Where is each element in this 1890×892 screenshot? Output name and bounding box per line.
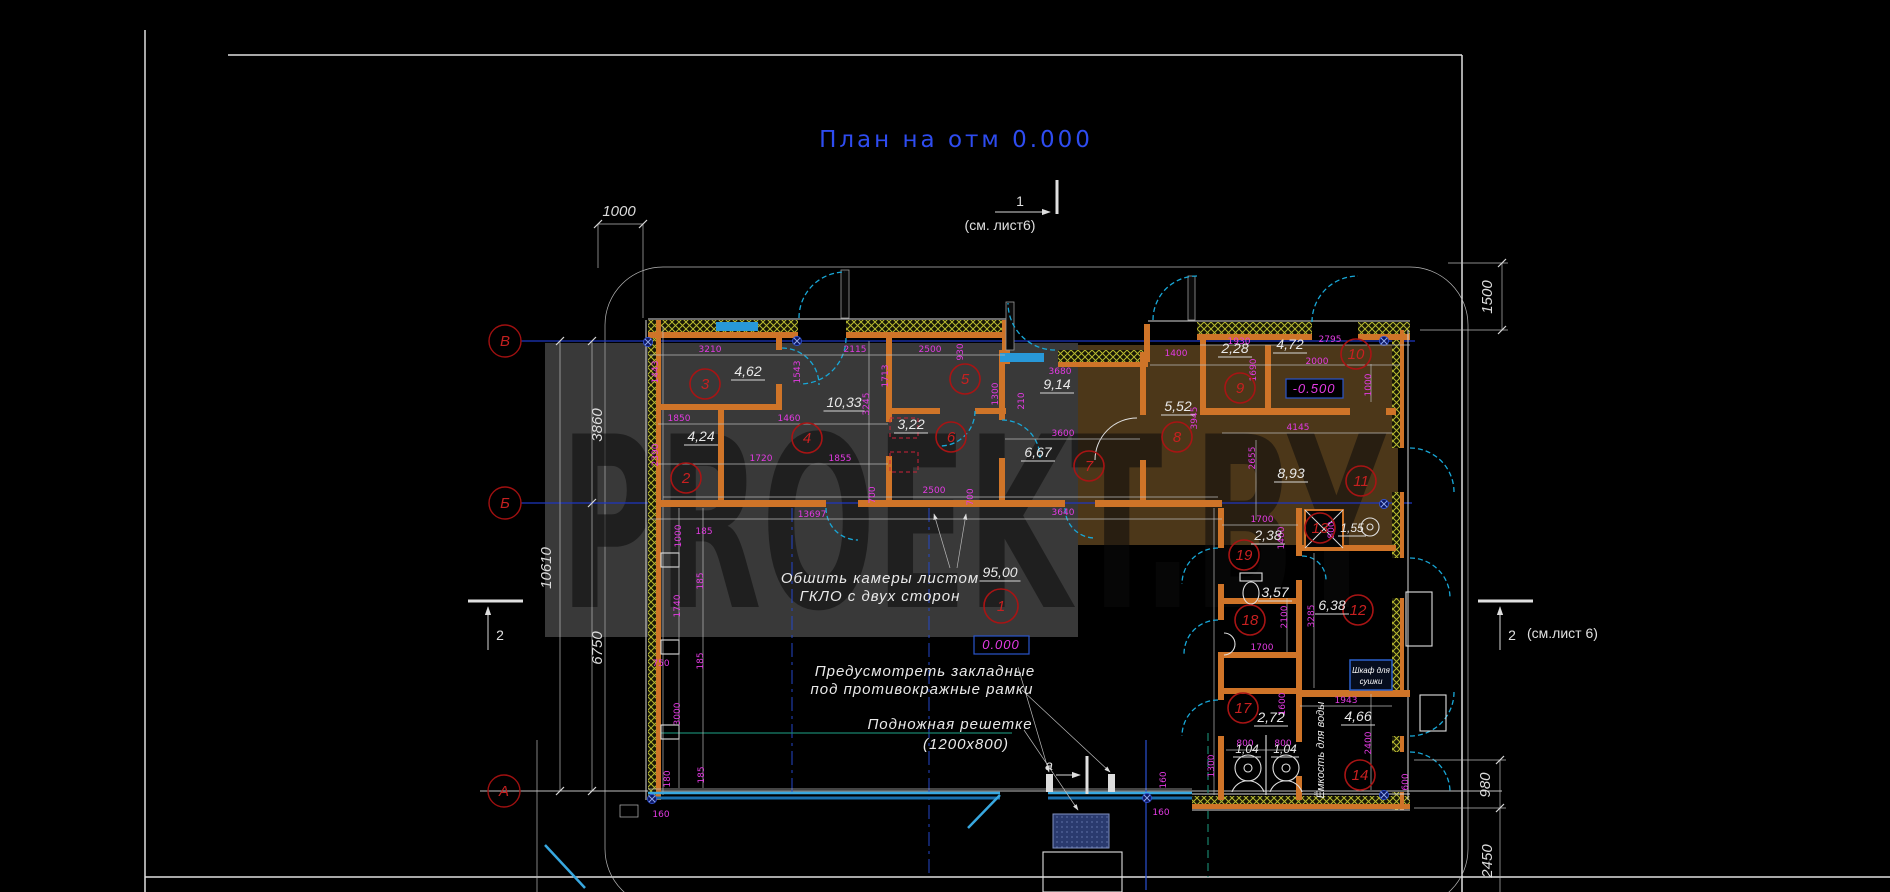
dimension-label: 1400	[1165, 349, 1188, 359]
room-area-label: 4,24	[687, 428, 714, 444]
dimension-label: 3000	[673, 702, 683, 725]
dimension-label: 13697	[798, 510, 827, 520]
dimension-label: 1700	[1251, 515, 1274, 525]
room-area-label: 6,38	[1318, 597, 1345, 613]
dimension-label: 160	[652, 810, 669, 820]
room-number: 17	[1235, 700, 1252, 717]
dimension-label: 1460	[778, 414, 801, 424]
dimension-label: 930	[956, 343, 966, 360]
dimension-label: 750	[652, 659, 669, 669]
dimension-label: 1700	[1251, 643, 1274, 653]
section-top-number: 1	[1016, 193, 1024, 209]
drying-cabinet-label-line1: Шкаф для	[1352, 666, 1390, 675]
dimension-label: 1300	[1207, 754, 1217, 777]
dimension-label: 1300	[991, 382, 1001, 405]
room-area-label: 9,14	[1043, 376, 1070, 392]
section-marker-left: 2	[468, 601, 523, 650]
dimension-label: 3210	[699, 345, 722, 355]
dimension-label: 2655	[1248, 447, 1258, 470]
section-right-number: 2	[1508, 627, 1516, 643]
room-area-label: 3,22	[897, 416, 924, 432]
note-embedded-line1: Предусмотреть закладные	[815, 663, 1035, 680]
dimension-label: 1000	[674, 524, 684, 547]
elevation-0000: 0.000	[982, 637, 1020, 652]
room-area-label: 2,38	[1253, 527, 1281, 543]
cad-drawing-viewport[interactable]: PROEKT.BY	[0, 0, 1890, 892]
floor-plan-canvas: PROEKT.BY	[0, 0, 1890, 892]
note-grate-line2: (1200х800)	[923, 736, 1009, 753]
room-area-label: 4,66	[1344, 708, 1371, 724]
dimension-label: 2390	[651, 443, 661, 466]
room-number: 7	[1085, 458, 1094, 475]
dimension-label: 1000	[1364, 373, 1374, 396]
dimension-label: 700	[966, 488, 976, 505]
dimension-label: 185	[696, 652, 706, 669]
room-area-label: 2,28	[1220, 340, 1248, 356]
dimension-label: 1443	[651, 361, 661, 384]
room-area-label: 10,33	[826, 394, 861, 410]
drawing-title: План на отм 0.000	[819, 127, 1093, 153]
axis-label-a: А	[498, 783, 509, 800]
dimension-label: 2115	[844, 345, 867, 355]
section-top-note: (см. лист6)	[965, 217, 1036, 233]
room-area-label: 4,62	[734, 363, 761, 379]
dimension-label: 10610	[538, 546, 555, 588]
dimension-label: 3245	[862, 393, 872, 416]
dimension-label: 185	[695, 527, 712, 537]
room-number: 5	[961, 371, 970, 388]
room-number: 13	[1312, 520, 1329, 537]
dimension-label: 185	[697, 766, 707, 783]
note-embedded-line2: под противокражные рамки	[811, 681, 1034, 698]
room-area-label: 95,00	[982, 564, 1017, 580]
section-bottom-letter: а	[1045, 757, 1053, 773]
water-tank-label: Ёмкость для воды	[1315, 702, 1327, 799]
drying-cabinet-label-line2: сушки	[1360, 677, 1383, 686]
dimension-label: 600	[1401, 773, 1411, 790]
dimension-label: 2000	[1306, 357, 1329, 367]
axis-label-v: В	[500, 333, 510, 350]
dimension-label: 1855	[829, 454, 852, 464]
dimension-label: 1500	[1479, 280, 1496, 314]
dimension-label: 180	[663, 770, 673, 787]
room-number: 11	[1353, 473, 1369, 490]
dimension-label: 2500	[923, 486, 946, 496]
room-area-label: 1,04	[1273, 742, 1297, 756]
room-area-label: 1,55	[1340, 521, 1364, 535]
dimension-label: 1850	[668, 414, 691, 424]
section-marker-top: 1 (см. лист6)	[965, 180, 1057, 233]
room-area-label: 5,52	[1164, 398, 1191, 414]
note-sheathing-line1: Обшить камеры листом	[781, 570, 979, 587]
entrance-mat	[1043, 774, 1122, 892]
dimension-label: 1720	[750, 454, 773, 464]
room-number: 9	[1236, 380, 1245, 397]
room-area-label: 2,72	[1256, 709, 1284, 725]
dimension-label: 980	[1477, 772, 1494, 798]
room-area-label: 1,04	[1235, 742, 1259, 756]
room-number: 2	[681, 470, 691, 487]
dimension-label: 1713	[881, 365, 891, 388]
room-area-label: 4,72	[1276, 336, 1303, 352]
dimension-label: 2795	[1319, 335, 1342, 345]
room-number: 18	[1242, 612, 1259, 629]
dimension-label: 3285	[1307, 605, 1317, 628]
dimension-label: 1000	[602, 203, 636, 220]
grate-layout-lines	[648, 733, 1208, 877]
dimension-label: 2500	[919, 345, 942, 355]
axis-bubbles: В Б А	[488, 325, 521, 807]
dimension-label: 2400	[1364, 731, 1374, 754]
room-number: 12	[1350, 602, 1367, 619]
section-left-number: 2	[496, 627, 504, 643]
room-number: 4	[803, 430, 811, 447]
room-area-label: 6,67	[1024, 444, 1052, 460]
room-number: 14	[1352, 767, 1369, 784]
dimension-label: 3600	[1052, 429, 1075, 439]
room-number: 6	[947, 429, 956, 446]
dimension-label: 160	[1159, 771, 1169, 788]
dimension-label: 6750	[589, 631, 606, 665]
axis-label-b: Б	[500, 495, 510, 512]
dimension-label: 3640	[1052, 508, 1075, 518]
dimension-label: 1740	[673, 594, 683, 617]
note-sheathing-line2: ГКЛО с двух сторон	[800, 588, 961, 605]
dimension-label: 3860	[589, 408, 606, 442]
dimension-label: 700	[868, 486, 878, 503]
room-number: 10	[1348, 346, 1365, 363]
dimension-label: 160	[1152, 808, 1169, 818]
note-grate-line1: Подножная решетке	[867, 716, 1032, 733]
elevation-minus-0500: -0.500	[1293, 381, 1336, 396]
section-marker-right: 2 (см.лист 6)	[1478, 601, 1598, 650]
dimension-label: 1943	[1335, 696, 1358, 706]
room-number: 1	[997, 598, 1005, 615]
dimension-label: 4145	[1287, 423, 1310, 433]
room-number: 3	[701, 376, 710, 393]
dimension-label: 210	[1017, 392, 1027, 409]
room-number: 19	[1236, 547, 1253, 564]
room-area-label: 8,93	[1277, 465, 1304, 481]
dimension-label: 2100	[1280, 605, 1290, 628]
dimension-label: 185	[696, 572, 706, 589]
room-number: 8	[1173, 429, 1182, 446]
dimension-label: 1543	[793, 361, 803, 384]
room-area-label: 3,57	[1261, 584, 1289, 600]
dimension-label: 2450	[1479, 844, 1496, 879]
section-right-note: (см.лист 6)	[1527, 625, 1598, 641]
